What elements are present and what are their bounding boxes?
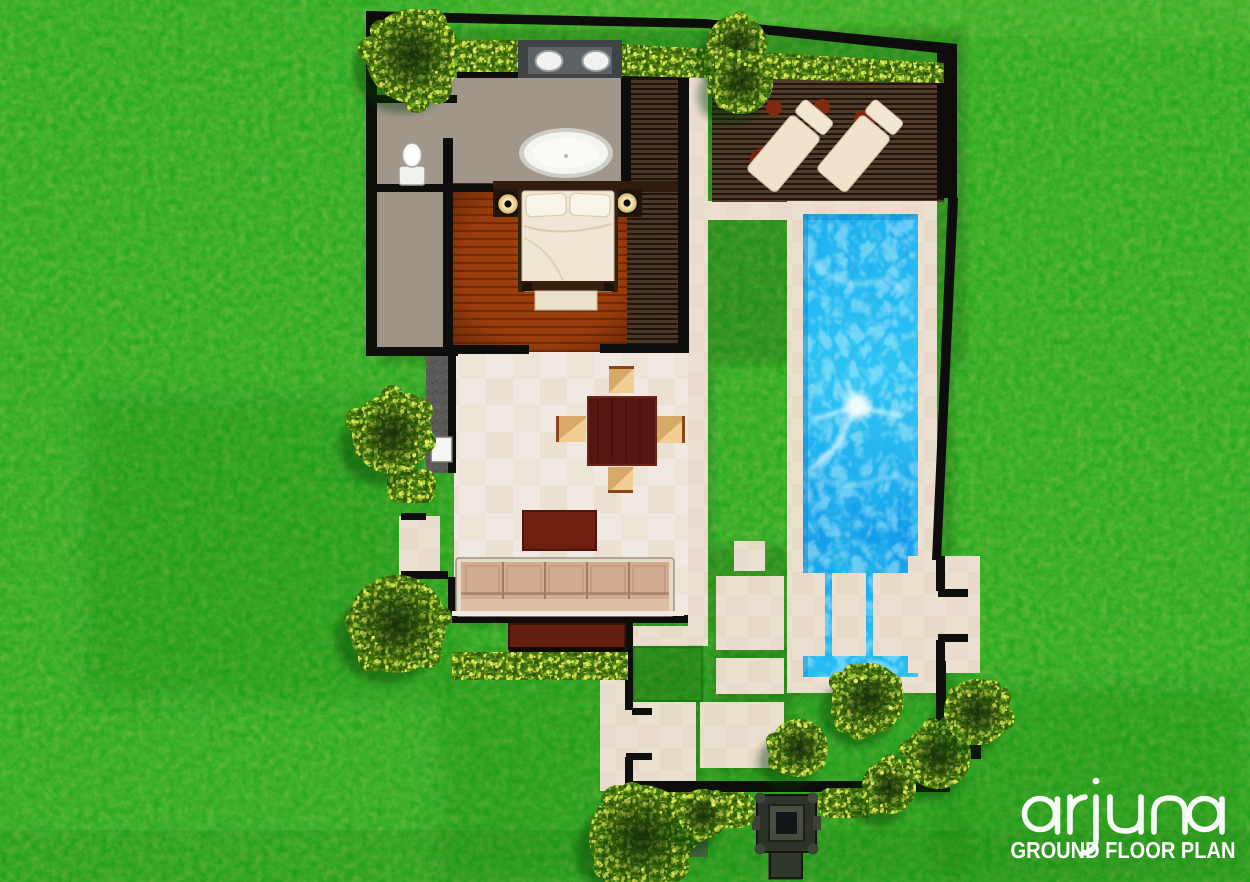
svg-text:GROUND FLOOR PLAN: GROUND FLOOR PLAN xyxy=(1011,837,1236,863)
